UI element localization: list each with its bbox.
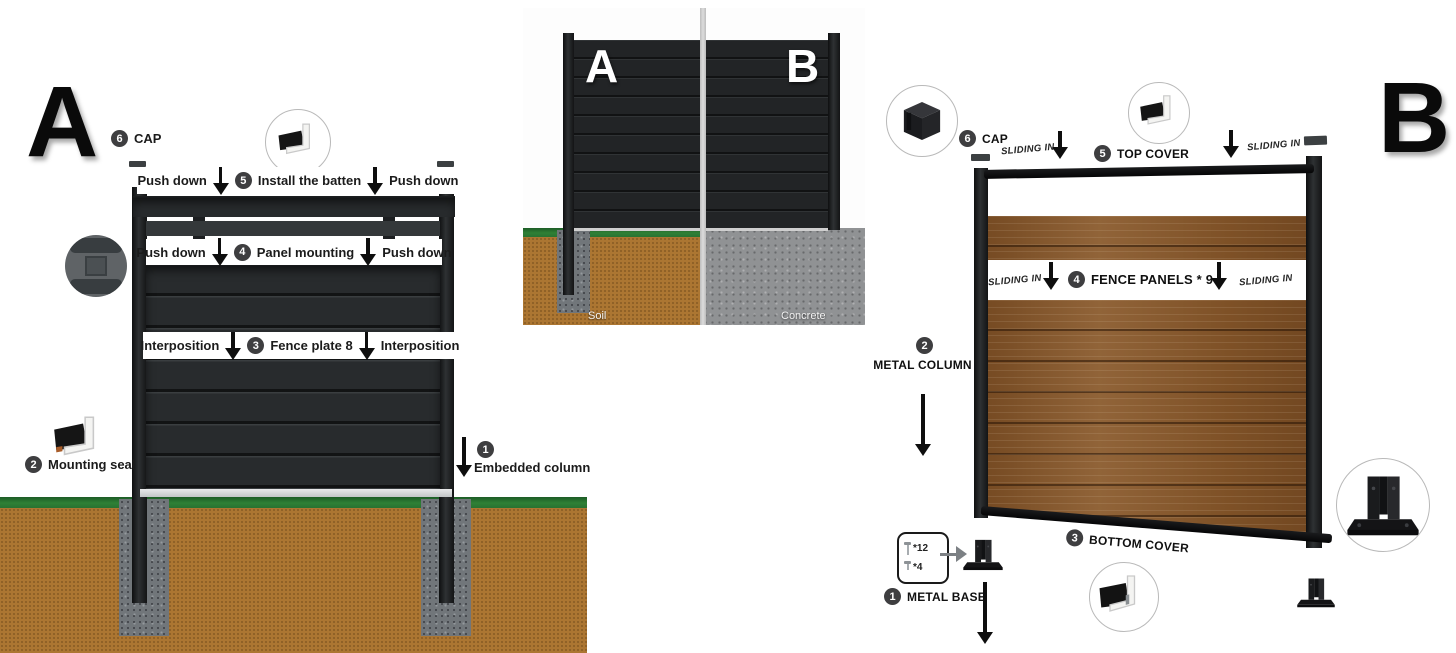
down-arrow-icon (360, 238, 376, 266)
concrete-label: Concrete (781, 310, 826, 322)
step-number: 5 (1094, 145, 1111, 162)
grass-strip (0, 497, 587, 508)
step-cap-label-a: 6 CAP (111, 130, 161, 147)
fence-installation-diagram: A 6 CAP Push down 5 Install the batten P… (0, 0, 1456, 653)
step-number: 2 (916, 337, 933, 354)
step-text: FENCE PANELS * 9 (1091, 272, 1213, 287)
step2-label-a: 2 Mounting seal (25, 456, 135, 473)
down-arrow-icon (1223, 130, 1239, 158)
step-number: 6 (959, 130, 976, 147)
compare-letter-b: B (786, 43, 819, 89)
push-down-label: Push down (382, 245, 451, 260)
comparison-image: A B Soil Concrete (523, 8, 865, 325)
interposition-label: Interposition (381, 338, 460, 353)
top-panel-strip (146, 221, 440, 236)
wood-panel-strip (988, 216, 1306, 260)
section-b-letter: B (1378, 68, 1450, 168)
bottom-cover-part-icon (1089, 562, 1159, 632)
down-arrow-icon (1052, 131, 1068, 159)
step5-label-b: 5 TOP COVER (1094, 145, 1189, 162)
batten-rail (133, 196, 455, 217)
bottom-cover-bracket-icon (1096, 569, 1152, 625)
fence-b-post-left (974, 168, 988, 518)
batten-bracket-icon (272, 116, 324, 168)
step-text: Install the batten (258, 173, 361, 188)
compare-post-right (828, 33, 840, 230)
down-arrow-icon (212, 238, 228, 266)
top-cover-rail (984, 164, 1314, 179)
down-arrow-icon (367, 167, 383, 195)
down-arrow-icon (213, 167, 229, 195)
step-text: CAP (982, 132, 1008, 146)
screws-long-qty: *12 (913, 543, 928, 554)
soil-ground (0, 508, 587, 653)
down-arrow-icon (977, 582, 993, 646)
step-number: 1 (477, 441, 494, 458)
fence-b-panels (988, 300, 1306, 538)
compare-letter-a: A (585, 43, 618, 89)
metal-base-zoom-icon (1336, 458, 1430, 552)
step4-band: Push down 4 Panel mounting Push down (146, 239, 442, 265)
step-text: Mounting seal (48, 457, 135, 472)
step-number: 3 (1065, 529, 1083, 547)
step-number: 6 (111, 130, 128, 147)
step-text: TOP COVER (1117, 147, 1189, 161)
down-arrow-icon (456, 437, 472, 479)
cap-on-post (971, 154, 990, 161)
sliding-in-label: SLIDING IN (1001, 142, 1055, 158)
step-number: 5 (235, 172, 252, 189)
screws-long-row: *12 (903, 542, 943, 555)
down-arrow-icon (1211, 262, 1227, 290)
step1-label-b: 1 METAL BASE (884, 588, 986, 605)
fence-b-post-right (1306, 156, 1322, 548)
step-number: 4 (1068, 271, 1085, 288)
step-number: 2 (25, 456, 42, 473)
sliding-in-label: SLIDING IN (1239, 273, 1293, 289)
step1-label-a: Embedded column (474, 460, 590, 475)
step4-label-b: 4 FENCE PANELS * 9 (1068, 271, 1213, 288)
down-arrow-icon (225, 332, 241, 360)
compare-soil (523, 237, 702, 325)
down-arrow-icon (1043, 262, 1059, 290)
step2-label-b: METAL COLUMN (870, 358, 975, 372)
step-text: Embedded column (474, 460, 590, 475)
step-number: 4 (234, 244, 251, 261)
screws-short-qty: *4 (913, 562, 922, 573)
step-text: Panel mounting (257, 245, 355, 260)
step-text: METAL BASE (907, 590, 986, 604)
sliding-in-label: SLIDING IN (1247, 138, 1301, 154)
section-a-letter: A (26, 72, 98, 172)
step-text: METAL COLUMN (873, 358, 972, 372)
step-text: CAP (134, 131, 161, 146)
bottom-rail-a (140, 489, 452, 497)
step5-band: Push down 5 Install the batten Push down (137, 167, 459, 194)
compare-post-left (563, 33, 574, 295)
cap-on-post-right (1304, 136, 1327, 146)
screw-icon (903, 542, 912, 555)
step2-number-b: 2 (916, 337, 933, 354)
sliding-in-label: SLIDING IN (988, 273, 1042, 289)
step3-band: Interposition 3 Fence plate 8 Interposit… (143, 332, 457, 359)
fence-a-panels (146, 264, 440, 490)
push-down-label: Push down (138, 173, 207, 188)
step3-label-b: 3 BOTTOM COVER (1065, 529, 1189, 557)
cap-part-icon (886, 85, 958, 157)
divider-line (700, 8, 706, 325)
cap-cube-icon (893, 92, 951, 150)
step6-label-b: 6 CAP (959, 130, 1008, 147)
step-number: 3 (247, 337, 264, 354)
interposition-label: Interposition (141, 338, 220, 353)
step-text: BOTTOM COVER (1089, 532, 1190, 555)
screws-short-row: *4 (903, 561, 943, 574)
down-arrow-icon (359, 332, 375, 360)
step-text: Fence plate 8 (270, 338, 352, 353)
panel-connector-icon (65, 235, 127, 297)
soil-label: Soil (588, 310, 606, 322)
batten-part-icon (265, 109, 331, 175)
top-cover-bracket-icon (1134, 88, 1184, 138)
step1-number-a: 1 (477, 441, 494, 458)
metal-base-part-icon (962, 532, 1004, 574)
push-down-label: Push down (136, 245, 205, 260)
down-arrow-icon (915, 394, 931, 458)
metal-base-small-icon (1296, 570, 1336, 612)
screw-icon (903, 561, 912, 574)
step-number: 1 (884, 588, 901, 605)
push-down-label: Push down (389, 173, 458, 188)
top-cover-part-icon (1128, 82, 1190, 144)
